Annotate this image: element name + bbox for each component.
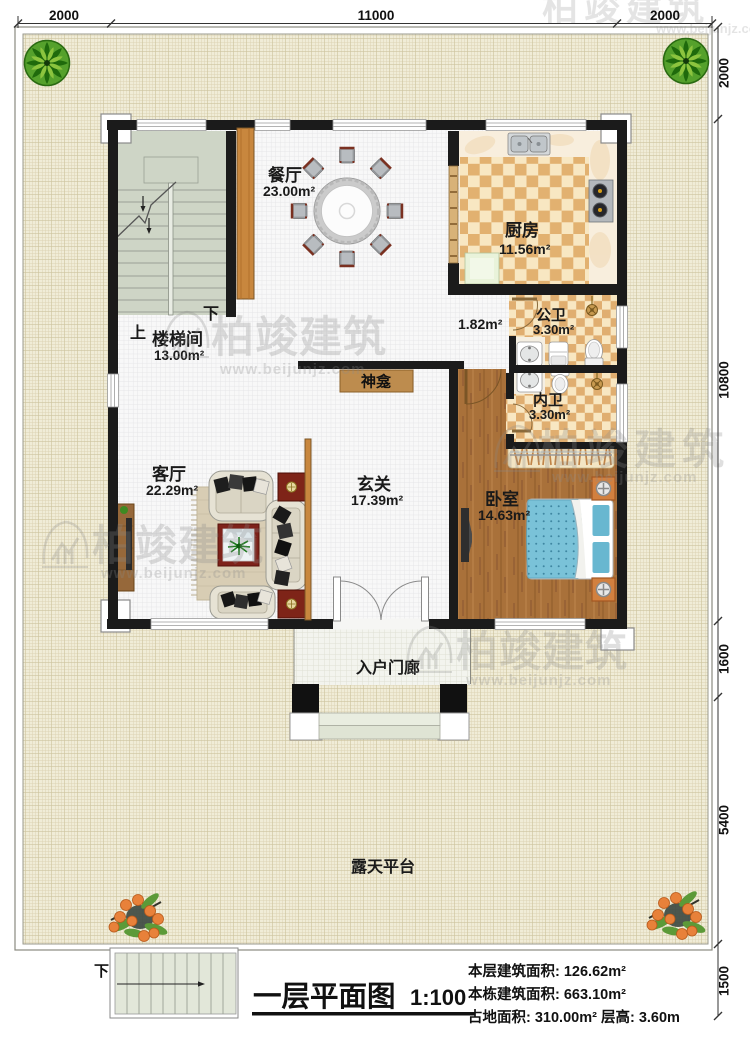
svg-text:柏竣建筑: 柏竣建筑 xyxy=(211,314,387,362)
svg-text:本栋建筑面积: 663.10m²: 本栋建筑面积: 663.10m² xyxy=(468,985,626,1003)
svg-text:11.56m²: 11.56m² xyxy=(499,241,551,257)
svg-text:2000: 2000 xyxy=(49,8,79,23)
svg-text:本层建筑面积: 126.62m²: 本层建筑面积: 126.62m² xyxy=(468,962,626,980)
svg-text:1:100: 1:100 xyxy=(410,985,466,1010)
svg-text:1.82m²: 1.82m² xyxy=(458,316,503,332)
svg-text:3.30m²: 3.30m² xyxy=(533,322,575,337)
svg-text:1600: 1600 xyxy=(717,644,732,674)
svg-text:餐厅: 餐厅 xyxy=(268,165,302,185)
svg-text:露天平台: 露天平台 xyxy=(351,857,415,876)
svg-text:14.63m²: 14.63m² xyxy=(478,507,530,523)
svg-text:柏竣建筑: 柏竣建筑 xyxy=(538,426,730,473)
svg-text:11000: 11000 xyxy=(358,8,395,23)
svg-text:www.beijunjz.com: www.beijunjz.com xyxy=(100,565,246,582)
svg-text:22.29m²: 22.29m² xyxy=(146,482,198,498)
svg-text:2000: 2000 xyxy=(650,8,680,23)
svg-text:3.30m²: 3.30m² xyxy=(529,407,571,422)
svg-text:23.00m²: 23.00m² xyxy=(263,183,315,199)
svg-text:入户门廊: 入户门廊 xyxy=(356,658,420,677)
svg-text:www.beijunjz.com: www.beijunjz.com xyxy=(465,672,611,689)
svg-text:1500: 1500 xyxy=(717,966,732,996)
svg-text:17.39m²: 17.39m² xyxy=(351,492,403,508)
svg-text:玄关: 玄关 xyxy=(357,474,391,494)
svg-text:5400: 5400 xyxy=(717,805,732,835)
svg-text:柏竣建筑: 柏竣建筑 xyxy=(92,522,264,569)
svg-text:神龛: 神龛 xyxy=(361,373,392,391)
svg-text:上: 上 xyxy=(130,324,146,342)
svg-text:www.beijunjz.com: www.beijunjz.com xyxy=(551,469,697,486)
svg-text:2000: 2000 xyxy=(717,58,732,88)
svg-text:10800: 10800 xyxy=(717,361,732,399)
svg-text:客厅: 客厅 xyxy=(151,464,186,484)
svg-text:柏竣建筑: 柏竣建筑 xyxy=(456,628,628,675)
svg-text:占地面积: 310.00m² 层高: 3.60m: 占地面积: 310.00m² 层高: 3.60m xyxy=(468,1008,680,1026)
svg-text:一层平面图: 一层平面图 xyxy=(253,981,396,1013)
svg-text:下: 下 xyxy=(94,963,109,980)
svg-text:www.beijunjz.com: www.beijunjz.com xyxy=(219,361,365,378)
svg-text:厨房: 厨房 xyxy=(505,220,539,240)
svg-text:卧室: 卧室 xyxy=(485,489,519,509)
